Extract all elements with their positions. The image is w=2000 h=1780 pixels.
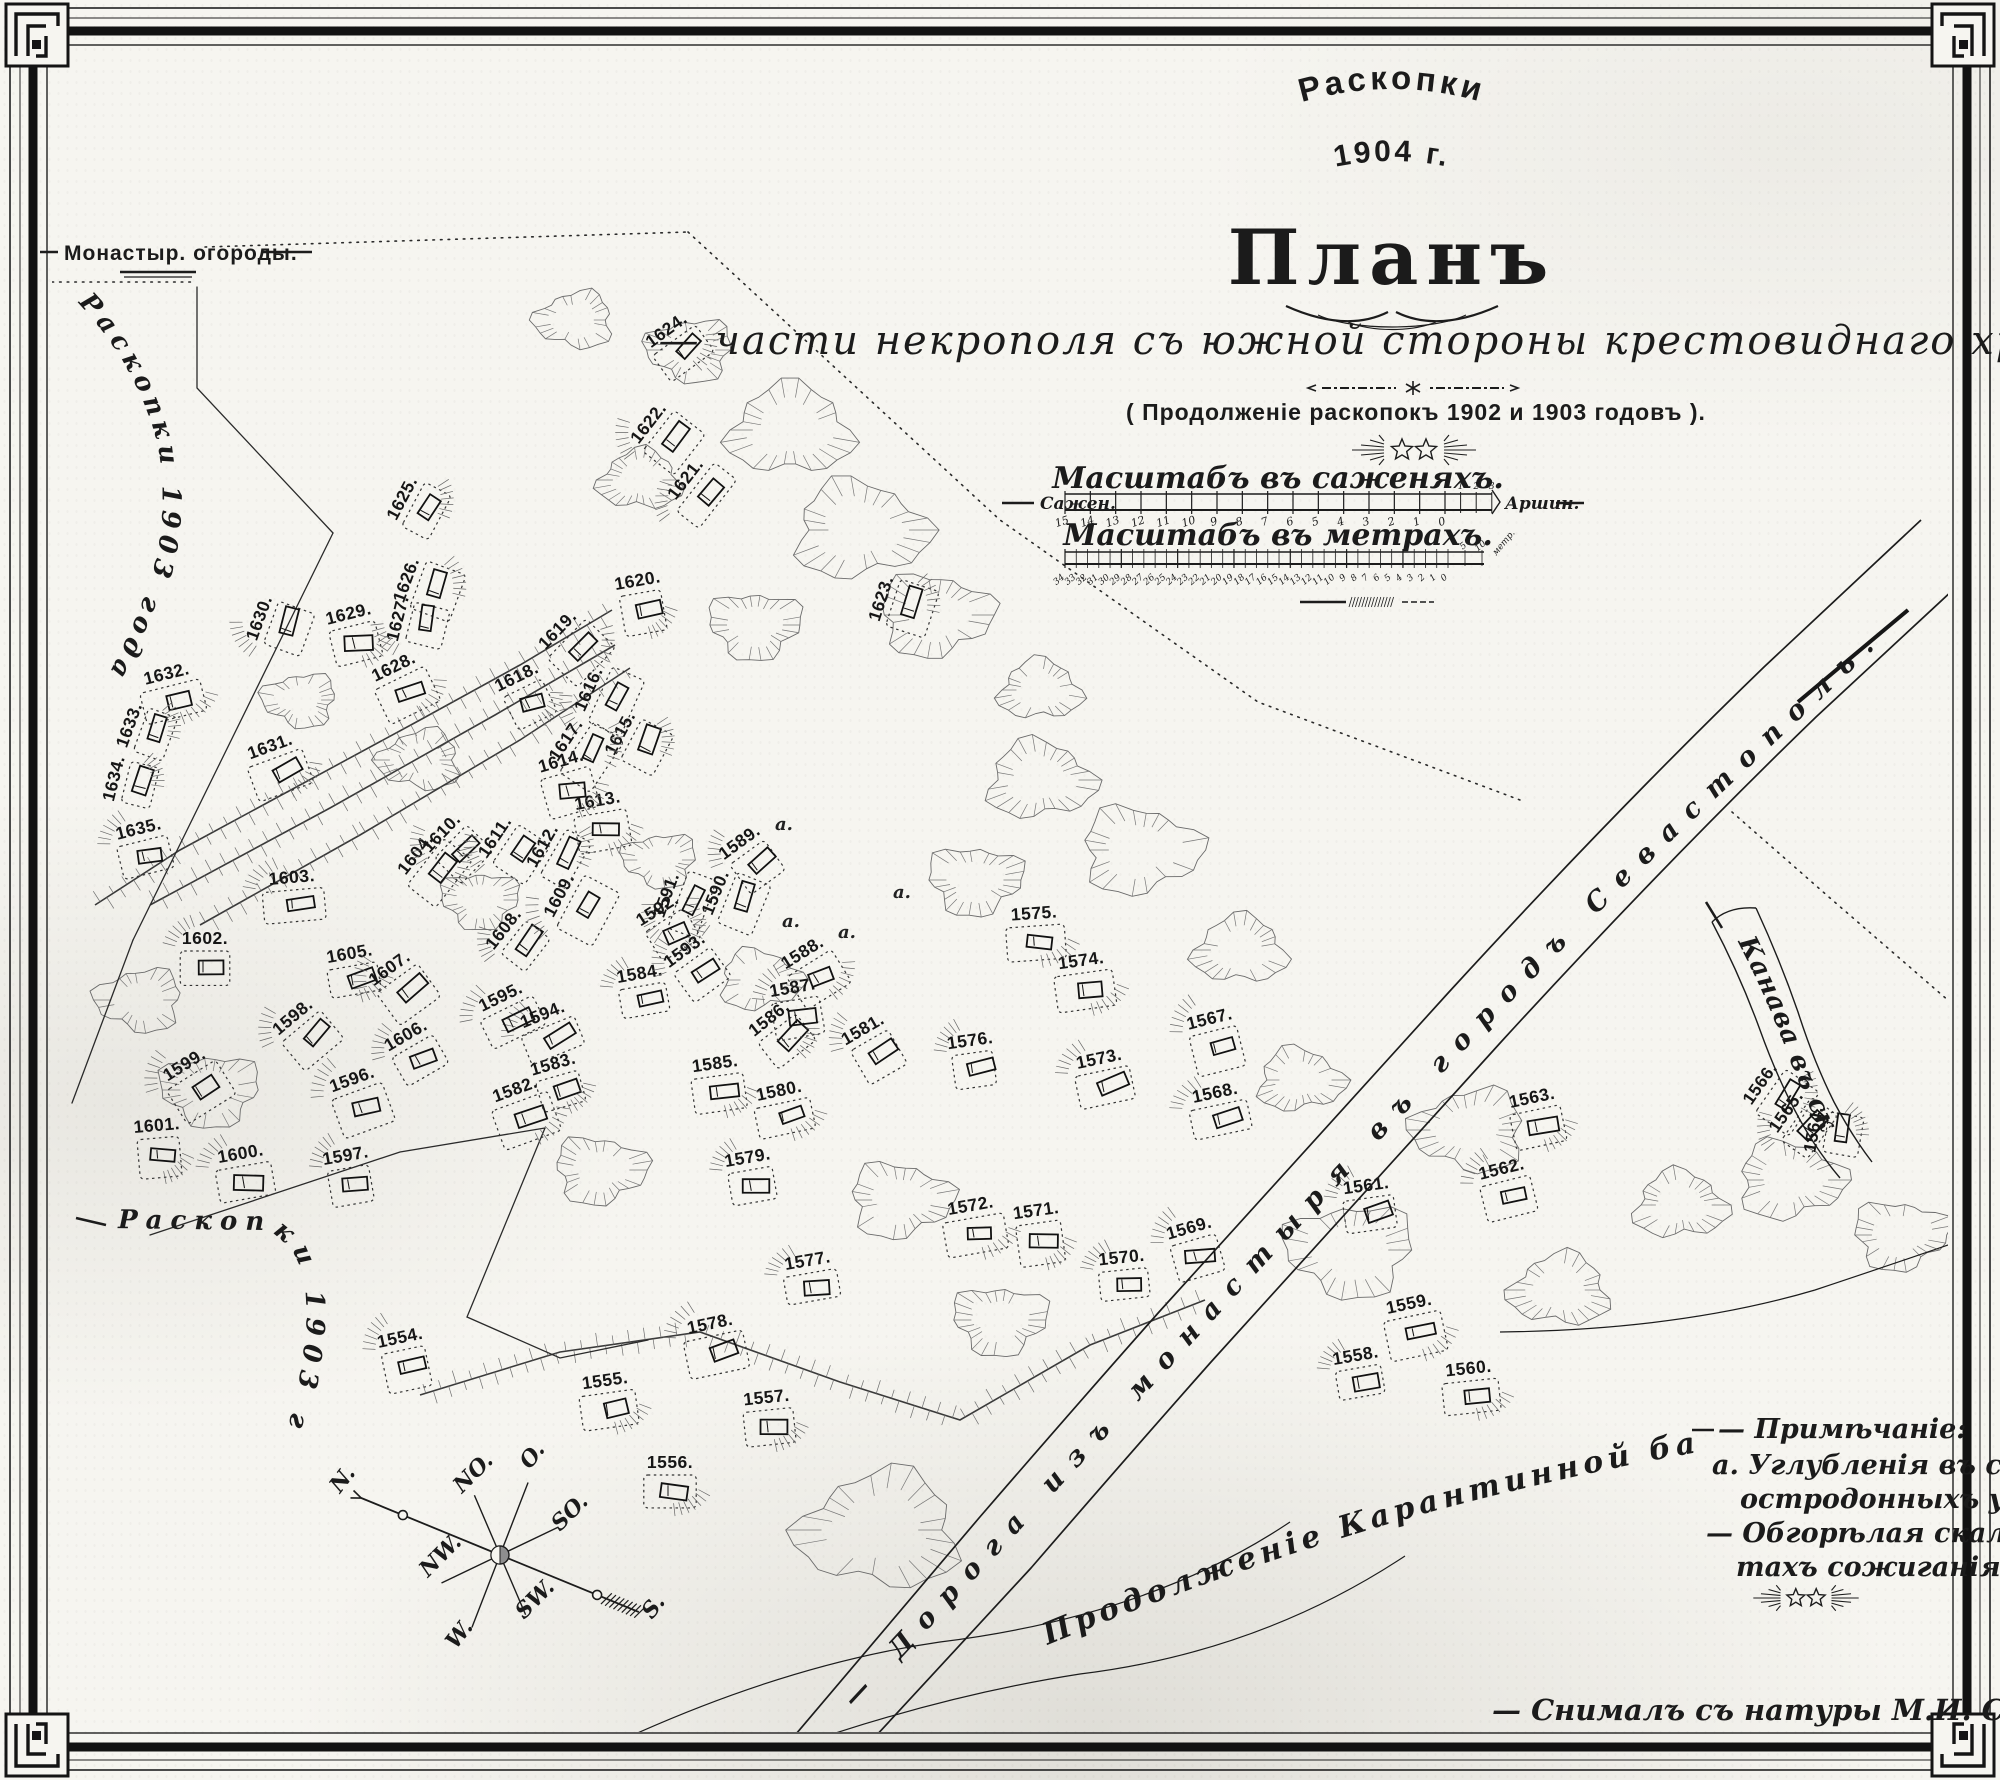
- subtitle-ornament: [1308, 381, 1518, 395]
- title-year: 1904 г.: [1331, 135, 1453, 174]
- terrain-blob: [793, 476, 939, 579]
- grave-feature: 1579.: [705, 1132, 778, 1209]
- grave-feature: 1570.: [1078, 1236, 1151, 1304]
- grave-feature: 1613.: [570, 783, 648, 861]
- grave-feature: 1560.: [1439, 1354, 1516, 1424]
- grave-number: 1586.: [744, 996, 793, 1040]
- grave-number: 1581.: [837, 1009, 887, 1049]
- grave-number: 1632.: [141, 658, 191, 689]
- grave-feature: 1581.: [816, 994, 909, 1094]
- svg-text:Раскопки 1903 года.: Раскопки 1903 года.: [0, 0, 330, 1439]
- grave-feature: 1580.: [749, 1072, 831, 1148]
- grave-number: 1570.: [1097, 1245, 1145, 1270]
- grave-number: 1578.: [685, 1309, 734, 1338]
- terrain-blob: [1631, 1165, 1732, 1238]
- grave-number: 1615.: [600, 708, 639, 758]
- grave-number: 1571.: [1012, 1197, 1061, 1223]
- grave-feature: 1571.: [1012, 1195, 1080, 1274]
- grave-number: 1616.: [570, 664, 607, 714]
- urn-hollow-annotation: а.: [838, 922, 856, 943]
- grave-number: 1625.: [382, 473, 421, 523]
- map-content: 1554.1555.1556.1557.1558.1559.1560.1561.…: [52, 232, 1985, 1780]
- terrain-blob: [994, 655, 1087, 718]
- grave-number: 1576.: [946, 1027, 995, 1053]
- grave-number: 1569.: [1164, 1212, 1214, 1244]
- grave-feature: 1596.: [300, 1043, 396, 1145]
- svg-text:8: 8: [1349, 572, 1360, 584]
- grave-number: 1612.: [522, 820, 562, 870]
- grave-number: 1631.: [245, 729, 295, 764]
- grave-number: 1621.: [663, 454, 707, 503]
- page-title: Раскопки: [1294, 59, 1490, 109]
- meter-right-label: метр.: [1491, 528, 1518, 557]
- grave-feature: 1554.: [356, 1305, 434, 1398]
- compass-o-label: O.: [514, 1438, 550, 1474]
- grave-feature: 1577.: [760, 1238, 841, 1309]
- svg-text:1: 1: [1458, 482, 1464, 492]
- terrain-blob: [1742, 1137, 1852, 1222]
- svg-text:10: 10: [1322, 572, 1337, 587]
- grave-feature: 1563.: [1505, 1079, 1583, 1158]
- grave-feature: 1601.: [133, 1112, 196, 1186]
- note-line-a2: остродонныхъ урнъ.: [1740, 1484, 2000, 1515]
- grave-number: 1619.: [534, 606, 581, 653]
- compass-s-label: S.: [636, 1590, 671, 1624]
- grave-number: 1633.: [112, 700, 147, 750]
- grave-feature: 1572.: [938, 1188, 1024, 1266]
- title-block: Раскопки 1904 г. Планъ — части некрополя…: [658, 59, 2000, 465]
- signature: — Снималъ съ натуры М.И. Скубетовъ. 1904…: [1492, 1693, 2000, 1727]
- grave-number: 1555.: [581, 1367, 630, 1393]
- title-plan: Планъ: [1228, 213, 1557, 302]
- grave-feature: 1569.: [1142, 1196, 1225, 1287]
- star-ornament: [1753, 1585, 1858, 1611]
- grave-feature: 1574.: [1050, 944, 1132, 1020]
- monastery-gardens-label: Монастыр. огороды.: [40, 242, 312, 277]
- urn-hollow-annotation: а.: [782, 911, 800, 932]
- terrain-blob: [720, 378, 859, 470]
- boundary-solid: [197, 287, 333, 533]
- decorative-border: [6, 4, 1994, 1776]
- grave-number: 1599.: [159, 1044, 209, 1085]
- terrain-blob: [557, 1137, 653, 1206]
- grave-feature: 1562.: [1453, 1138, 1538, 1227]
- grave-feature: 1559.: [1378, 1285, 1463, 1369]
- grave-number: 1574.: [1057, 947, 1106, 973]
- svg-text:2: 2: [1472, 482, 1479, 492]
- grave-feature: 1567.: [1162, 985, 1246, 1081]
- terrain-blob: [852, 1161, 959, 1239]
- trench-label: Канава въ скалѣ.: [0, 0, 1843, 1137]
- grave-number: 1554.: [375, 1323, 424, 1352]
- grave-feature: 1632.: [134, 653, 223, 733]
- grave-number: 1556.: [647, 1452, 693, 1472]
- excavations-1903-upper-label: Раскопки 1903 года.: [0, 0, 186, 688]
- svg-text:7: 7: [1360, 572, 1371, 584]
- terrain-blob: [1085, 804, 1209, 897]
- scanned-map-page: 1554.1555.1556.1557.1558.1559.1560.1561.…: [0, 0, 2000, 1780]
- greek-key-corner: [6, 4, 68, 66]
- excavation-plan-svg: 1554.1555.1556.1557.1558.1559.1560.1561.…: [0, 0, 2000, 1780]
- terrain-blob: [529, 288, 611, 350]
- note-star-ornament: [1753, 1585, 1858, 1611]
- grave-number: 1634.: [98, 753, 129, 803]
- compass-no-label: NO.: [447, 1448, 498, 1499]
- terrain-blob: [619, 834, 695, 889]
- terrain-blob: [1855, 1202, 1952, 1272]
- boundary-solid: [72, 940, 133, 1103]
- grave-number: 1580.: [754, 1076, 803, 1105]
- grave-number: 1557.: [742, 1385, 790, 1410]
- greek-key-corner: [1932, 4, 1994, 66]
- terrain-and-features-layer: 1554.1555.1556.1557.1558.1559.1560.1561.…: [52, 232, 1957, 1588]
- note-line-a: а. Углубленія въ скалѣ для: [1712, 1450, 2000, 1481]
- terrain-blob: [954, 1290, 1050, 1357]
- grave-feature: 1585.: [688, 1048, 763, 1123]
- grave-number: 1630.: [242, 593, 277, 643]
- grave-feature: 1578.: [657, 1292, 750, 1384]
- terrain-blob: [1187, 910, 1291, 981]
- grave-number: 1594.: [517, 996, 567, 1032]
- grave-feature: 1620.: [613, 564, 682, 643]
- grave-feature: 1628.: [364, 639, 457, 731]
- corner-ornaments: [6, 4, 1994, 1776]
- svg-text:2: 2: [1416, 572, 1428, 584]
- svg-text:4: 4: [1393, 572, 1405, 584]
- grave-feature: 1630.: [221, 587, 316, 673]
- scale-bottom-flourish: [1300, 597, 1434, 607]
- grave-feature: 1621.: [640, 443, 737, 543]
- map-text-labels: Монастыр. огороды. Раскопки 1903 года. Р…: [0, 0, 1891, 1714]
- grave-feature: 1584.: [596, 950, 671, 1022]
- grave-feature: 1600.: [191, 1127, 276, 1207]
- grave-number: 1567.: [1184, 1003, 1234, 1034]
- monastery-gardens-text: Монастыр. огороды.: [64, 242, 298, 265]
- sazhen-scale-title: Масштабъ въ саженяхъ.: [1051, 461, 1504, 496]
- grave-number: 1635.: [113, 813, 163, 844]
- svg-text:1: 1: [1428, 573, 1439, 584]
- grave-feature: 1623.: [864, 559, 950, 640]
- grave-feature: 1558.: [1313, 1332, 1386, 1403]
- grave-number: 1585.: [691, 1050, 740, 1076]
- grave-number: 1611.: [474, 812, 516, 861]
- svg-text:Канава въ скалѣ.: Канава въ скалѣ.: [0, 0, 1843, 1137]
- grave-number: 1562.: [1476, 1153, 1526, 1184]
- grave-feature: 1573.: [1049, 1031, 1135, 1114]
- grave-feature: 1609.: [511, 855, 620, 963]
- note-line-b: — Обгорѣлая скала въ мѣс=: [1706, 1518, 2000, 1549]
- compass-w-label: W.: [440, 1615, 478, 1654]
- grave-feature: 1603.: [241, 853, 327, 926]
- grave-number: 1627.: [382, 593, 413, 643]
- svg-text:9: 9: [1338, 572, 1349, 584]
- grave-number: 1600.: [216, 1139, 265, 1167]
- grave-feature: 1631.: [239, 722, 329, 809]
- terrain-blob: [593, 444, 684, 508]
- svg-text:0: 0: [1439, 572, 1450, 584]
- compass-rose: N. NO. O. SO. S. SW. W. NW.: [324, 1438, 671, 1654]
- terrain-blob: [1504, 1247, 1611, 1325]
- grave-feature: 1576.: [930, 1014, 1000, 1092]
- grave-number: 1558.: [1331, 1341, 1380, 1369]
- grave-feature: 1625.: [381, 459, 465, 544]
- grave-number: 1590.: [697, 867, 733, 917]
- grave-number: 1623.: [864, 573, 897, 623]
- note-block: — Примѣчаніе: а. Углубленія въ скалѣ для…: [1692, 1414, 2000, 1611]
- grave-feature: 1556.: [644, 1452, 710, 1516]
- grave-number: 1573.: [1074, 1044, 1123, 1073]
- grave-feature: 1597.: [304, 1127, 377, 1211]
- note-title: — Примѣчаніе:: [1718, 1414, 1966, 1445]
- grave-number: 1601.: [133, 1113, 181, 1137]
- scale-bars: Масштабъ въ саженяхъ. Сажен. Аршин. 1514…: [1002, 461, 1584, 607]
- meter-scale-title: Масштабъ въ метрахъ.: [1062, 518, 1493, 553]
- grave-feature: 1634.: [98, 743, 171, 813]
- grave-feature: 1568.: [1164, 1067, 1252, 1144]
- svg-text:3: 3: [1405, 572, 1416, 584]
- grave-number: 1629.: [323, 598, 373, 629]
- grave-number: 1618.: [491, 657, 541, 695]
- terrain-blob: [882, 574, 1000, 658]
- terrain-blob: [709, 595, 803, 660]
- title-subtitle: — части некрополя съ южной стороны крест…: [658, 318, 2000, 364]
- grave-feature: 1555.: [576, 1364, 655, 1439]
- excavations-1903-lower-label: Раскопки 1903 года.: [0, 0, 330, 1439]
- grave-number: 1602.: [182, 928, 228, 948]
- svg-text:6: 6: [1372, 572, 1383, 584]
- terrain-blob: [985, 734, 1102, 818]
- grave-number: 1575.: [1010, 901, 1058, 924]
- grave-number: 1588.: [777, 932, 827, 973]
- grave-number: 1559.: [1384, 1289, 1433, 1318]
- grave-number: 1606.: [380, 1015, 430, 1055]
- terrain-blob: [1256, 1044, 1351, 1111]
- svg-text:5: 5: [1383, 572, 1394, 584]
- grave-number: 1609.: [539, 870, 578, 920]
- grave-feature: 1633.: [112, 687, 191, 764]
- urn-hollow-annotation: а.: [775, 814, 793, 835]
- ridge-hachure: [420, 1290, 1205, 1425]
- greek-key-corner: [6, 1714, 68, 1776]
- note-line-b2: тахъ сожиганія труповъ.: [1736, 1552, 2000, 1583]
- grave-feature: 1602.: [163, 915, 230, 985]
- grave-number: 1579.: [723, 1143, 772, 1171]
- grave-feature: 1635.: [91, 801, 175, 884]
- grave-number: 1603.: [268, 865, 316, 889]
- title-continuation: ( Продолженіе раскопокъ 1902 и 1903 годо…: [1126, 399, 1706, 425]
- grave-feature: 1583.: [528, 1044, 602, 1121]
- grave-number: 1622.: [626, 398, 670, 447]
- grave-number: 1560.: [1444, 1356, 1492, 1381]
- urn-hollow-annotation: а.: [893, 882, 911, 903]
- grave-feature: 1557.: [741, 1383, 811, 1455]
- compass-sw-label: SW.: [510, 1574, 560, 1624]
- grave-feature: 1598.: [243, 981, 344, 1083]
- terrain-blob: [258, 674, 335, 729]
- terrain-blob: [90, 967, 180, 1033]
